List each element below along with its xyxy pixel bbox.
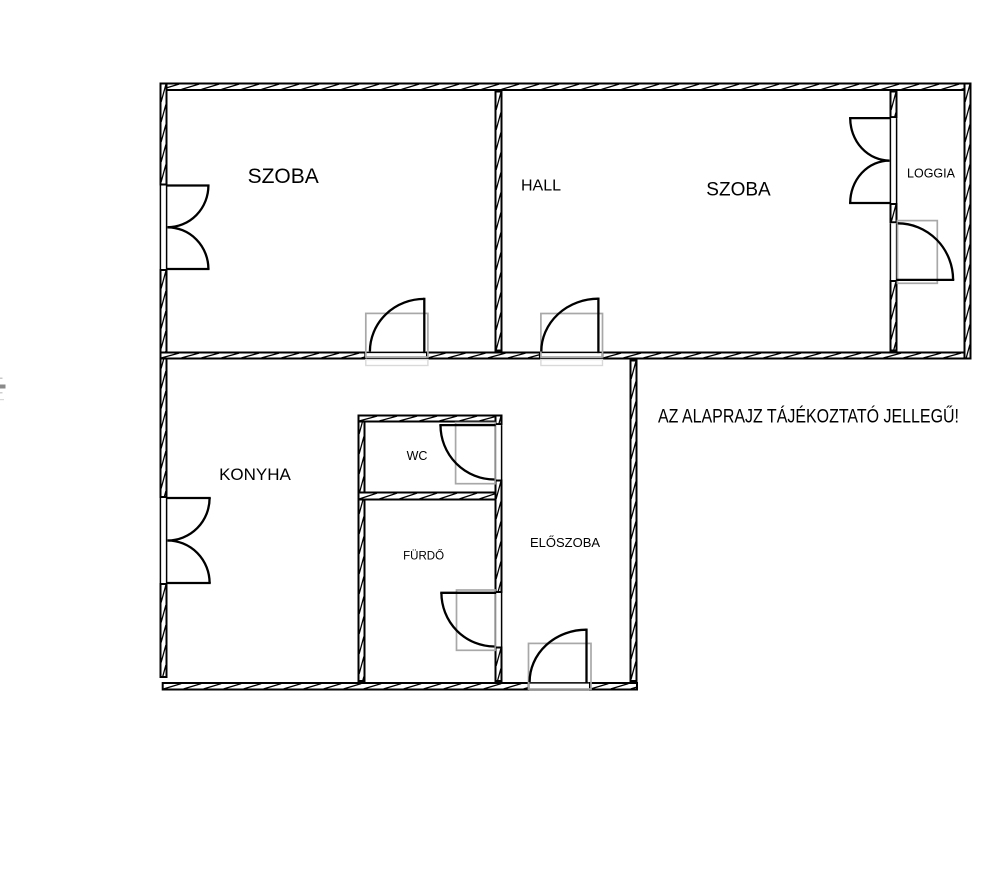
svg-text:AZ ALAPRAJZ TÁJÉKOZTATÓ JELLEG: AZ ALAPRAJZ TÁJÉKOZTATÓ JELLEGŰ! (658, 405, 959, 427)
svg-text:FÜRDŐ: FÜRDŐ (403, 549, 444, 563)
svg-text:SZOBA: SZOBA (248, 165, 319, 188)
svg-text:WC: WC (407, 449, 428, 463)
svg-text:SZOBA: SZOBA (706, 180, 771, 201)
svg-text:LOGGIA: LOGGIA (907, 167, 956, 181)
svg-text:KONYHA: KONYHA (219, 465, 291, 484)
svg-text:HALL: HALL (521, 178, 561, 195)
svg-text:ELŐSZOBA: ELŐSZOBA (530, 535, 600, 550)
